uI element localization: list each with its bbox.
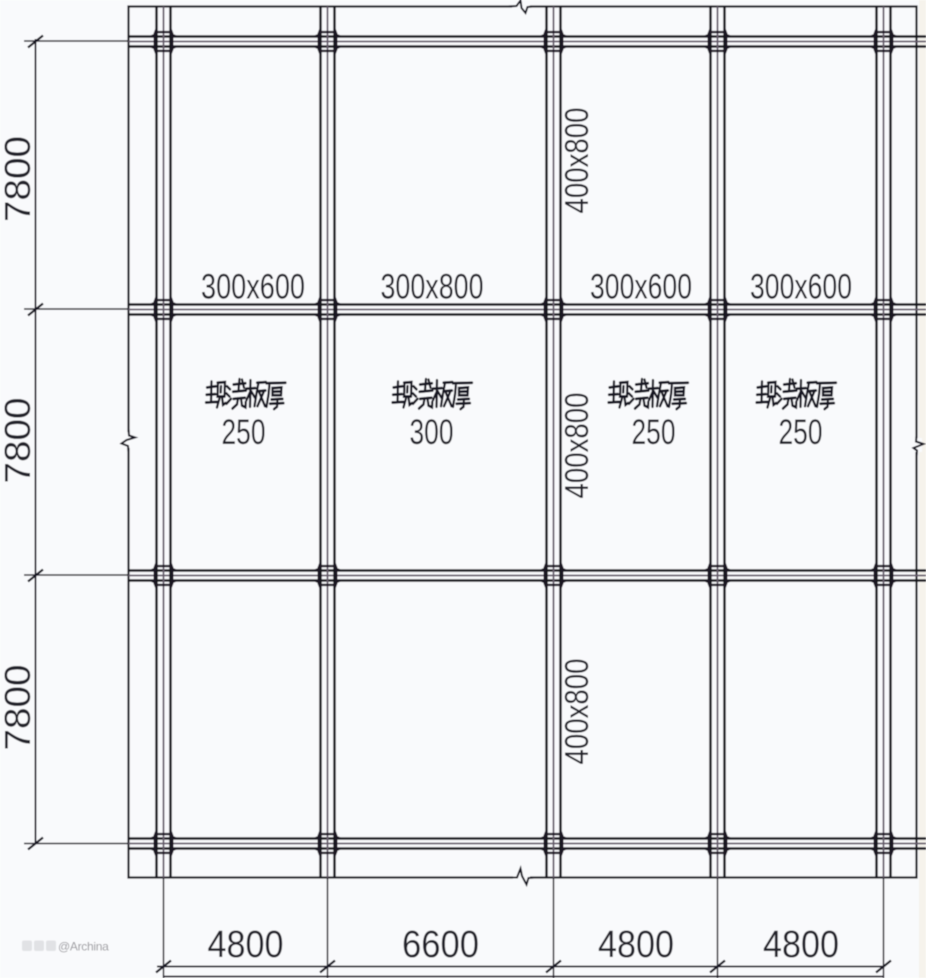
- svg-text:400x800: 400x800: [558, 659, 595, 765]
- svg-text:7800: 7800: [0, 136, 38, 222]
- svg-text:4800: 4800: [763, 924, 839, 966]
- svg-text:300x600: 300x600: [201, 268, 305, 307]
- svg-text:7800: 7800: [0, 398, 38, 484]
- svg-text:400x800: 400x800: [558, 393, 595, 499]
- svg-text:250: 250: [222, 413, 266, 452]
- svg-text:300x800: 300x800: [381, 268, 484, 307]
- svg-text:300x600: 300x600: [590, 268, 692, 307]
- svg-text:300: 300: [410, 413, 454, 452]
- svg-text:6600: 6600: [402, 924, 479, 966]
- svg-text:250: 250: [779, 413, 823, 452]
- svg-text:400x800: 400x800: [558, 108, 595, 214]
- svg-text:250: 250: [632, 413, 676, 452]
- svg-text:@Archina: @Archina: [58, 940, 109, 954]
- svg-text:300x600: 300x600: [750, 268, 852, 307]
- svg-text:4800: 4800: [208, 924, 284, 966]
- svg-text:7800: 7800: [0, 665, 38, 751]
- svg-text:4800: 4800: [598, 924, 674, 966]
